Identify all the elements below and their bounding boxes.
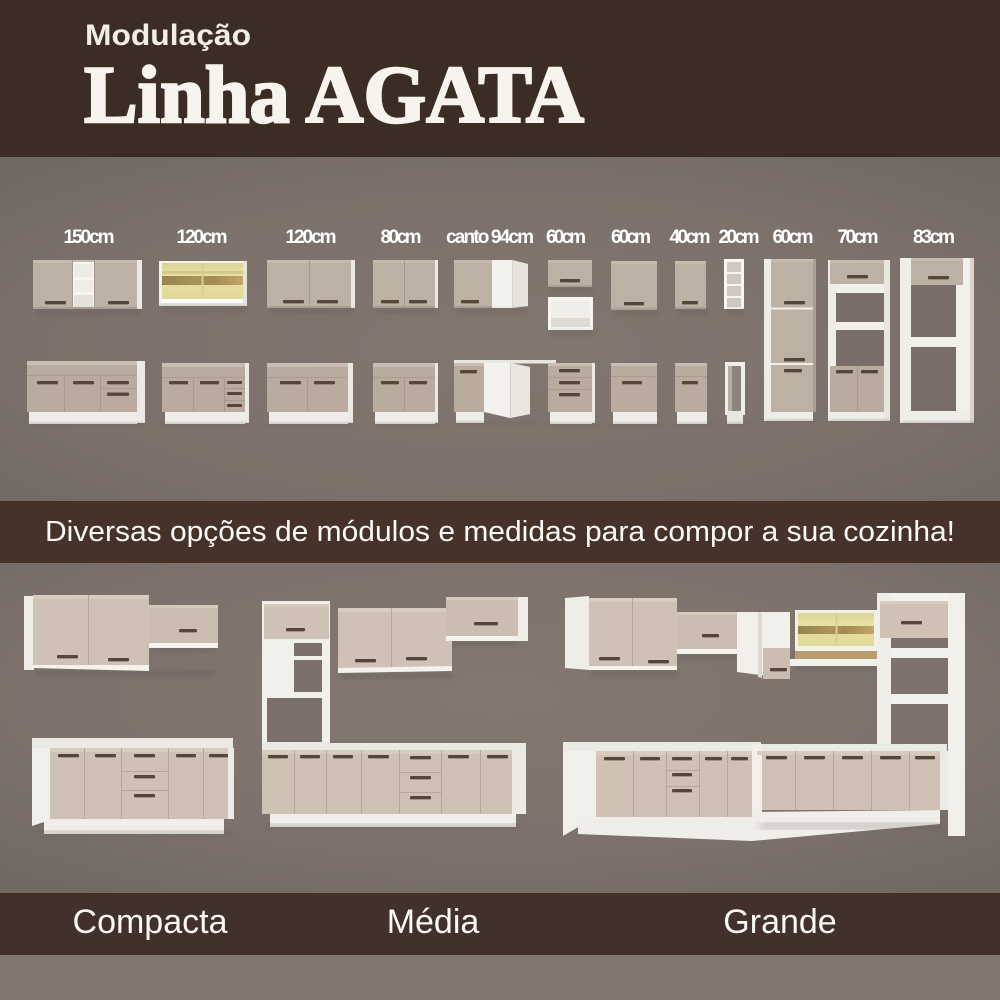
svg-text:60cm: 60cm [611, 227, 651, 248]
svg-text:Compacta: Compacta [73, 903, 228, 941]
svg-text:20cm: 20cm [719, 227, 760, 248]
svg-text:120cm: 120cm [177, 227, 228, 248]
svg-text:Grande: Grande [723, 903, 836, 941]
svg-text:80cm: 80cm [381, 227, 422, 248]
svg-text:83cm: 83cm [913, 227, 955, 248]
svg-text:60cm: 60cm [546, 227, 586, 248]
svg-text:Linha AGATA: Linha AGATA [84, 49, 584, 140]
svg-text:60cm: 60cm [773, 227, 814, 248]
svg-text:150cm: 150cm [64, 227, 115, 248]
svg-text:Diversas opções de módulos e m: Diversas opções de módulos e medidas par… [45, 516, 955, 548]
svg-text:120cm: 120cm [286, 227, 337, 248]
svg-text:Modulação: Modulação [85, 19, 251, 52]
svg-text:40cm: 40cm [670, 227, 711, 248]
svg-text:canto 94cm: canto 94cm [446, 227, 534, 248]
svg-text:70cm: 70cm [838, 227, 879, 248]
svg-text:Média: Média [387, 903, 480, 941]
